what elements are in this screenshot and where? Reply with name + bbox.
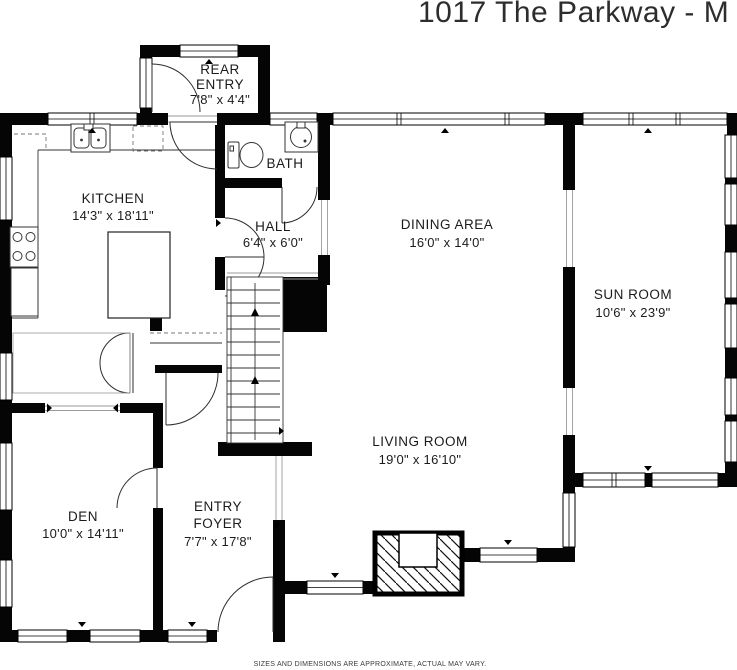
- closet-doors: [100, 333, 133, 393]
- wall-markers: [47, 59, 652, 627]
- floor-plan: REAR ENTRY 7'8" x 4'4" KITCHEN 14'3" x 1…: [0, 0, 737, 670]
- den-door: [117, 468, 157, 508]
- kitchen-foyer-door: [166, 373, 218, 425]
- toilet: [228, 142, 263, 168]
- bath-sink: [285, 122, 318, 152]
- room-dims-dining: 16'0" x 14'0": [409, 235, 484, 250]
- room-label-bath: BATH: [266, 156, 303, 171]
- room-label-entry-foyer-2: FOYER: [193, 516, 242, 531]
- room-dims-rear-entry: 7'8" x 4'4": [190, 92, 250, 107]
- refrigerator: [11, 268, 38, 316]
- kitchen-passage-door: [170, 122, 217, 169]
- room-label-living-room: LIVING ROOM: [372, 434, 468, 449]
- room-label-hall: HALL: [255, 219, 291, 234]
- pantry-closet: [13, 333, 130, 393]
- room-dims-living-room: 19'0" x 16'10": [379, 452, 462, 467]
- room-label-entry-foyer-1: ENTRY: [194, 499, 242, 514]
- room-label-rear-entry-1: REAR: [200, 62, 240, 77]
- room-dims-den: 10'0" x 14'11": [42, 526, 124, 541]
- room-dims-hall: 6'4" x 6'0": [243, 235, 303, 250]
- bath-door: [282, 187, 317, 223]
- front-door: [218, 577, 273, 632]
- stove: [10, 227, 38, 267]
- disclaimer-text: SIZES AND DIMENSIONS ARE APPROXIMATE, AC…: [254, 661, 487, 668]
- kitchen-sink: [71, 124, 110, 152]
- floor-plan-page: 1017 The Parkway - M: [0, 0, 737, 670]
- room-label-kitchen: KITCHEN: [82, 191, 145, 206]
- walls: [0, 45, 737, 642]
- room-label-den: DEN: [68, 509, 98, 524]
- room-label-dining: DINING AREA: [401, 217, 494, 232]
- windows: [0, 45, 737, 642]
- staircase: [227, 277, 283, 443]
- room-dims-kitchen: 14'3" x 18'11": [72, 208, 154, 223]
- chimney: [280, 277, 327, 332]
- room-dims-entry-foyer: 7'7" x 17'8": [184, 534, 252, 549]
- room-dims-sun-room: 10'6" x 23'9": [595, 305, 670, 320]
- kitchen-island: [108, 232, 170, 318]
- room-label-rear-entry-2: ENTRY: [196, 77, 244, 92]
- room-label-sun-room: SUN ROOM: [594, 287, 672, 302]
- fireplace: [375, 533, 462, 594]
